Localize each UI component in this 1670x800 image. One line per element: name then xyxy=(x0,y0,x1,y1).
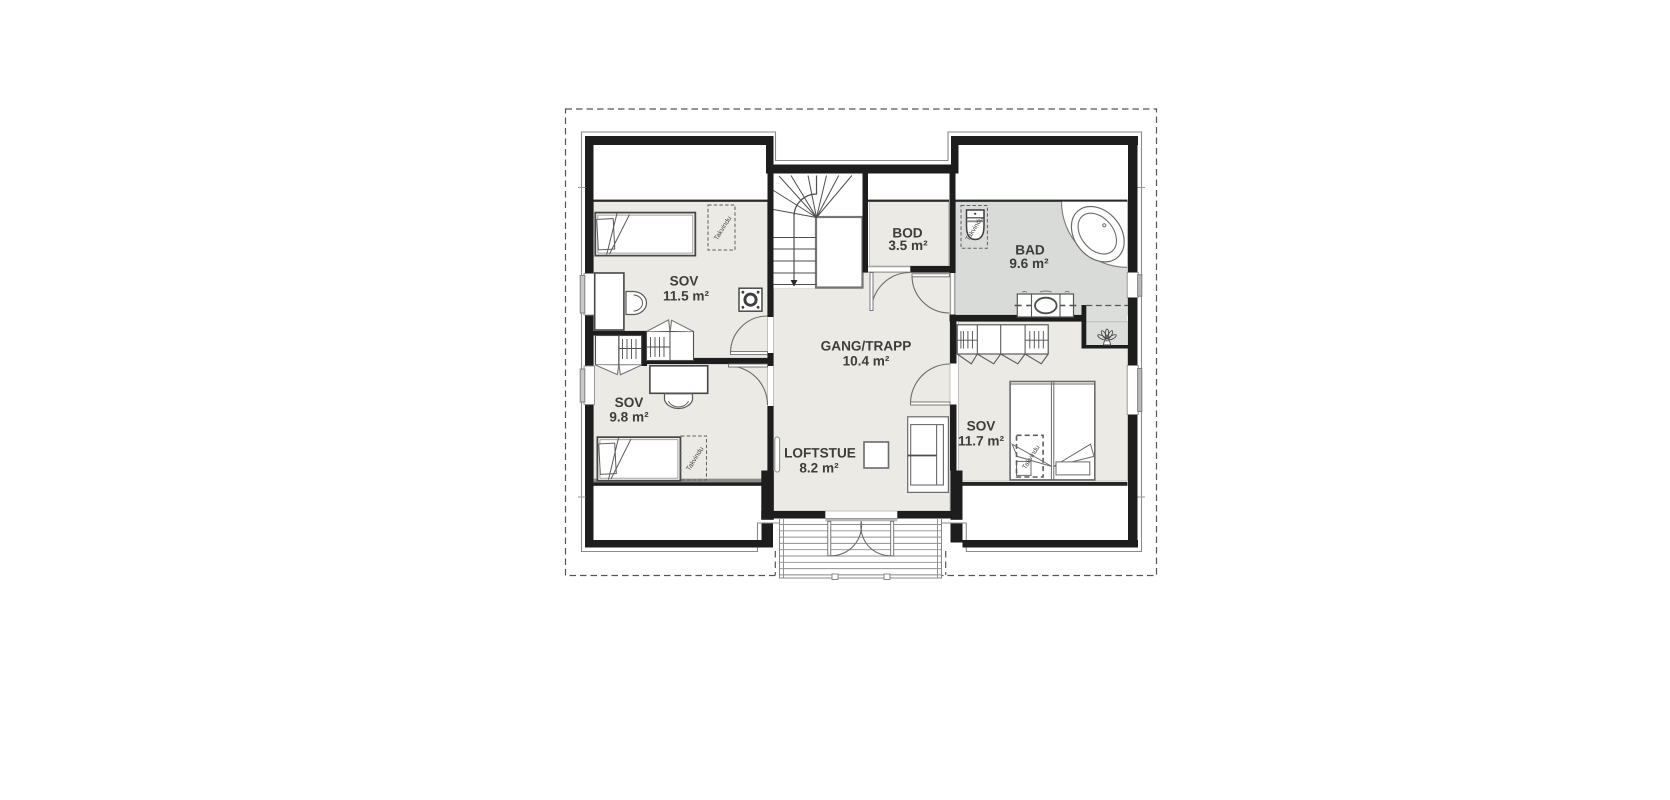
svg-text:11.7 m²: 11.7 m² xyxy=(958,434,1005,449)
svg-text:9.6 m²: 9.6 m² xyxy=(1009,256,1049,271)
svg-text:11.5 m²: 11.5 m² xyxy=(663,289,710,304)
svg-text:3.5 m²: 3.5 m² xyxy=(888,238,928,253)
svg-text:GANG/TRAPP: GANG/TRAPP xyxy=(821,339,912,354)
svg-text:8.2 m²: 8.2 m² xyxy=(799,461,839,476)
svg-text:SOV: SOV xyxy=(670,274,699,289)
svg-text:9.8 m²: 9.8 m² xyxy=(609,410,649,425)
svg-text:LOFTSTUE: LOFTSTUE xyxy=(784,446,856,461)
svg-text:SOV: SOV xyxy=(615,395,644,410)
svg-text:SOV: SOV xyxy=(967,419,996,434)
svg-text:10.4 m²: 10.4 m² xyxy=(843,354,890,369)
